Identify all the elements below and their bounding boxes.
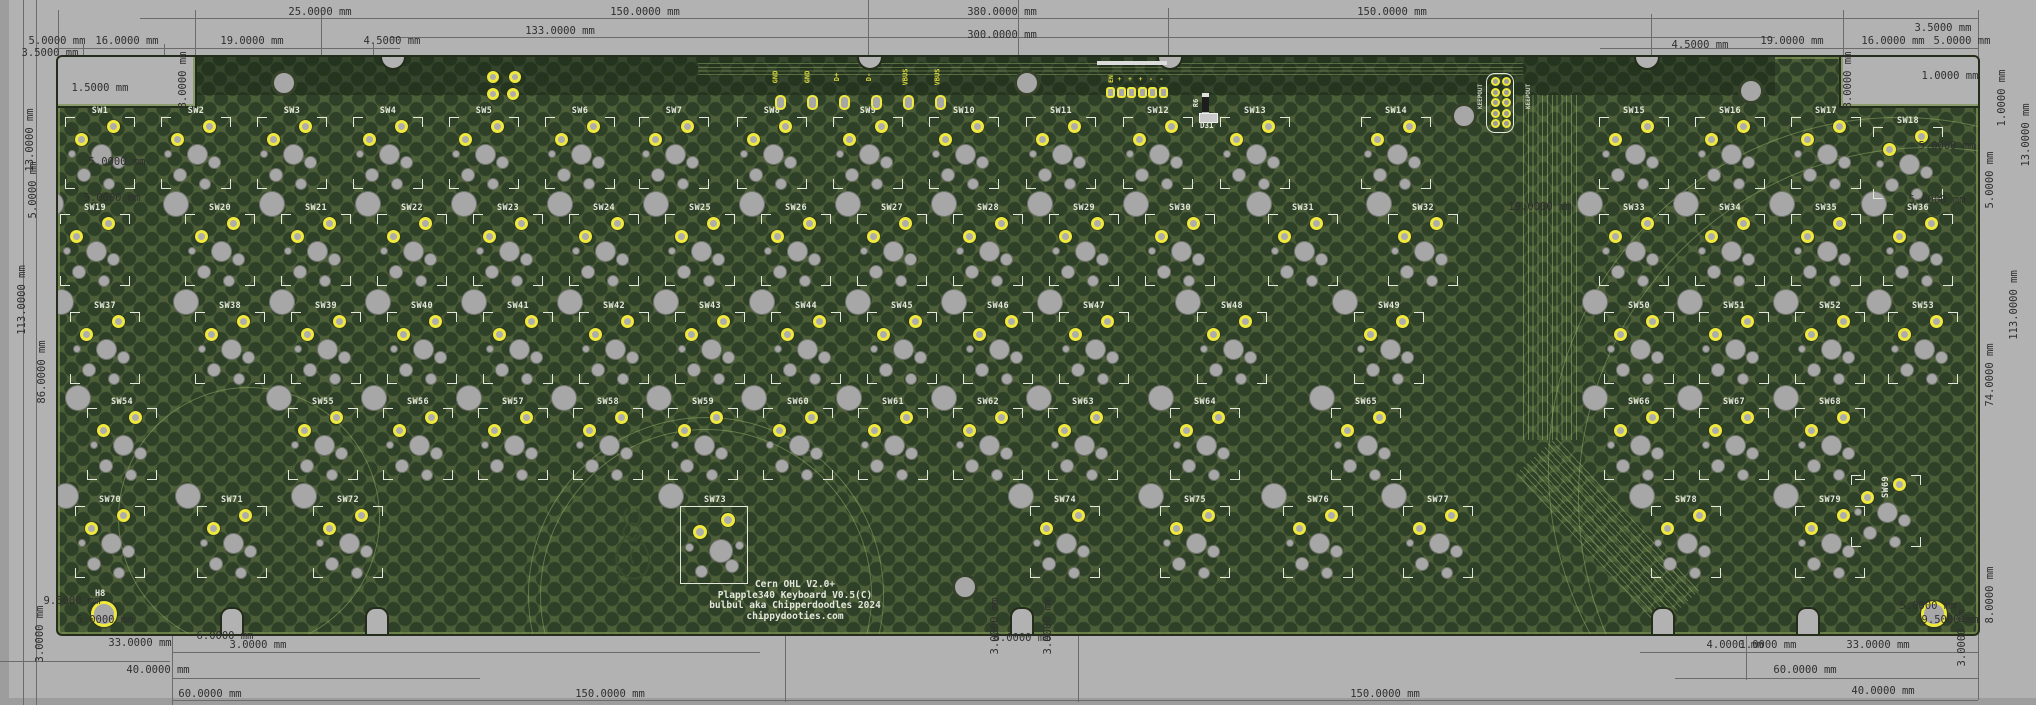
- courtyard-corner: [699, 179, 709, 189]
- switch-stem-hole: [1074, 435, 1095, 456]
- courtyard-corner: [533, 276, 543, 286]
- switch-side-hole: [572, 247, 580, 255]
- courtyard-corner: [1755, 117, 1765, 127]
- switch-pin-pad: [939, 133, 952, 146]
- switch-side-hole: [1258, 178, 1270, 190]
- switch-pin-pad: [299, 120, 312, 133]
- switch-side-hole: [642, 150, 650, 158]
- switch-footprint-sw36: SW36: [1883, 203, 1953, 289]
- switch-footprint-sw58: SW58: [573, 397, 643, 483]
- courtyard-corner: [533, 214, 543, 224]
- switch-pin-pad: [875, 120, 888, 133]
- courtyard-corner: [291, 312, 301, 322]
- switch-courtyard: [763, 408, 833, 480]
- courtyard-corner: [1448, 214, 1458, 224]
- switch-side-hole: [1895, 265, 1909, 279]
- switch-courtyard: [953, 214, 1023, 286]
- switch-courtyard: [185, 214, 255, 286]
- switch-label: SW59: [692, 397, 714, 407]
- switch-courtyard: [383, 408, 453, 480]
- power-pad-2: [1127, 87, 1136, 98]
- switch-footprint-sw28: SW28: [953, 203, 1023, 289]
- courtyard-corner: [633, 470, 643, 480]
- switch-pin-pad: [1609, 133, 1622, 146]
- switch-stem-hole: [1909, 241, 1930, 262]
- switch-side-hole: [1223, 150, 1231, 158]
- courtyard-corner: [1257, 374, 1267, 384]
- switch-footprint-sw50: SW50: [1604, 301, 1674, 387]
- switch-label: SW12: [1147, 106, 1169, 116]
- switch-footprint-sw64: SW64: [1170, 397, 1240, 483]
- switch-footprint-sw66: SW66: [1604, 397, 1674, 483]
- courtyard-corner: [185, 214, 195, 224]
- switch-stem-hole: [1899, 154, 1920, 175]
- dimension-label: 4.5000 mm: [364, 35, 421, 47]
- switch-side-hole: [712, 253, 725, 266]
- courtyard-corner: [857, 214, 867, 224]
- switch-footprint-sw40: SW40: [387, 301, 457, 387]
- switch-pin-pad: [621, 315, 634, 328]
- dimension-label: 8.0000 mm: [177, 52, 189, 109]
- dimension-line: [1078, 634, 1079, 702]
- courtyard-corner: [953, 214, 963, 224]
- switch-courtyard: [1699, 408, 1769, 480]
- switch-pin-pad: [330, 411, 343, 424]
- courtyard-corner: [437, 214, 447, 224]
- switch-pin-pad: [1925, 217, 1938, 230]
- courtyard-corner: [245, 214, 255, 224]
- switch-pin-pad: [1202, 509, 1215, 522]
- switch-side-hole: [1733, 275, 1745, 287]
- switch-footprint-sw48: SW48: [1197, 301, 1267, 387]
- switch-side-hole: [1295, 557, 1309, 571]
- switch-side-hole: [1173, 441, 1181, 449]
- switch-pin-pad: [707, 217, 720, 230]
- courtyard-corner: [1791, 117, 1801, 127]
- courtyard-corner: [1873, 127, 1883, 137]
- courtyard-corner: [545, 117, 555, 127]
- switch-side-hole: [870, 459, 884, 473]
- mounting-hole: [952, 574, 978, 600]
- switch-pin-pad: [1737, 120, 1750, 133]
- switch-pin-pad: [237, 315, 250, 328]
- courtyard-corner: [823, 470, 833, 480]
- switch-pin-pad: [1413, 522, 1426, 535]
- dimension-line: [1651, 14, 1652, 57]
- switch-side-hole: [1406, 539, 1414, 547]
- switch-pin-pad: [1709, 424, 1722, 437]
- courtyard-corner: [629, 276, 639, 286]
- usb-pad-gnd0: [775, 95, 786, 110]
- dimension-label: 1.0000 mm: [1996, 70, 2008, 127]
- courtyard-corner: [1911, 537, 1921, 547]
- courtyard-corner: [1948, 312, 1958, 322]
- switch-stem-hole: [763, 144, 784, 165]
- header-pin-pad: [1491, 119, 1500, 128]
- switch-pin-pad: [70, 230, 83, 243]
- courtyard-corner: [538, 408, 548, 418]
- courtyard-corner: [633, 408, 643, 418]
- switch-side-hole: [1366, 363, 1380, 377]
- courtyard-corner: [1948, 374, 1958, 384]
- switch-courtyard: [1791, 117, 1861, 189]
- switch-side-hole: [1060, 459, 1074, 473]
- switch-courtyard: [75, 506, 145, 578]
- dimension-line: [23, 0, 24, 705]
- switch-side-hole: [1321, 567, 1333, 579]
- switch-side-hole: [1378, 447, 1391, 460]
- switch-side-hole: [481, 441, 489, 449]
- switch-side-hole: [295, 178, 307, 190]
- switch-label: SW17: [1815, 106, 1837, 116]
- courtyard-corner: [1851, 276, 1861, 286]
- header-pin-pad: [1491, 109, 1500, 118]
- switch-footprint-sw25: SW25: [665, 203, 735, 289]
- courtyard-corner: [1855, 374, 1865, 384]
- dimension-line: [1600, 48, 1978, 49]
- courtyard-corner: [1257, 312, 1267, 322]
- switch-label: SW23: [497, 203, 519, 213]
- pcb-drawing-canvas: Cern OHL V2.0+ Plapple340 Keyboard V0.5(…: [0, 0, 2036, 705]
- dimension-label: 13.0000 mm: [2020, 103, 2032, 166]
- switch-label: SW57: [502, 397, 524, 407]
- courtyard-corner: [1664, 470, 1674, 480]
- switch-stem-hole: [403, 241, 424, 262]
- courtyard-corner: [1659, 117, 1669, 127]
- switch-pin-pad: [1805, 328, 1818, 341]
- switch-side-hole: [232, 253, 245, 266]
- courtyard-corner: [1220, 179, 1230, 189]
- switch-pin-pad: [1212, 411, 1225, 424]
- switch-side-hole: [294, 345, 302, 353]
- switch-side-hole: [1400, 265, 1414, 279]
- switch-stem-hole: [1725, 435, 1746, 456]
- dimension-label: 3.0000 mm: [1042, 598, 1054, 655]
- switch-pin-pad: [488, 424, 501, 437]
- switch-side-hole: [1646, 156, 1659, 169]
- courtyard-corner: [1851, 537, 1861, 547]
- switch-stem-hole: [1052, 144, 1073, 165]
- courtyard-corner: [675, 312, 685, 322]
- switch-pin-pad: [771, 230, 784, 243]
- courtyard-corner: [1119, 374, 1129, 384]
- switch-footprint-sw2: SW2: [161, 106, 231, 192]
- switch-side-hole: [671, 441, 679, 449]
- courtyard-corner: [120, 214, 130, 224]
- courtyard-corner: [545, 179, 555, 189]
- switch-side-hole: [188, 247, 196, 255]
- switch-side-hole: [1885, 178, 1899, 192]
- switch-footprint-sw56: SW56: [383, 397, 453, 483]
- switch-side-hole: [991, 275, 1003, 287]
- courtyard-corner: [449, 179, 459, 189]
- courtyard-corner: [639, 117, 649, 127]
- power-pad-5: [1159, 87, 1168, 98]
- switch-side-hole: [904, 253, 917, 266]
- courtyard-corner: [1328, 214, 1338, 224]
- switch-side-hole: [1217, 447, 1230, 460]
- switch-side-hole: [199, 178, 211, 190]
- switch-side-hole: [1833, 567, 1845, 579]
- switch-pin-pad: [333, 315, 346, 328]
- courtyard-corner: [867, 374, 877, 384]
- switch-courtyard: [1888, 312, 1958, 384]
- switch-pin-pad: [1230, 133, 1243, 146]
- switch-stem-hole: [1414, 241, 1435, 262]
- courtyard-corner: [1048, 470, 1058, 480]
- switch-side-hole: [430, 447, 443, 460]
- courtyard-corner: [1403, 506, 1413, 516]
- switch-stem-hole: [1380, 339, 1401, 360]
- courtyard-corner: [1651, 506, 1661, 516]
- courtyard-corner: [317, 117, 327, 127]
- courtyard-corner: [893, 179, 903, 189]
- switch-side-hole: [1746, 351, 1759, 364]
- switch-side-hole: [680, 459, 694, 473]
- courtyard-corner: [185, 276, 195, 286]
- switch-side-hole: [678, 345, 686, 353]
- courtyard-corner: [281, 214, 291, 224]
- courtyard-corner: [1086, 179, 1096, 189]
- courtyard-corner: [383, 470, 393, 480]
- switch-side-hole: [1232, 168, 1246, 182]
- switch-footprint-sw7: SW7: [639, 106, 709, 192]
- courtyard-corner: [1795, 408, 1805, 418]
- switch-side-hole: [242, 351, 255, 364]
- switch-stem-hole: [1630, 339, 1651, 360]
- switch-pin-pad: [1091, 217, 1104, 230]
- switch-side-hole: [1064, 178, 1076, 190]
- courtyard-corner: [1851, 179, 1861, 189]
- switch-footprint-sw16: SW16: [1695, 106, 1765, 192]
- courtyard-corner: [1361, 179, 1371, 189]
- switch-pin-pad: [803, 217, 816, 230]
- switch-side-hole: [1794, 247, 1802, 255]
- courtyard-corner: [221, 179, 231, 189]
- courtyard-corner: [1123, 117, 1133, 127]
- switch-pin-pad: [843, 133, 856, 146]
- courtyard-corner: [569, 214, 579, 224]
- courtyard-corner: [1013, 470, 1023, 480]
- switch-stem-hole: [317, 339, 338, 360]
- switch-pin-pad: [995, 411, 1008, 424]
- courtyard-corner: [1795, 568, 1805, 578]
- dimension-label: 3.5000 mm: [22, 47, 79, 59]
- courtyard-corner: [413, 179, 423, 189]
- switch-footprint-sw71: SW71: [197, 495, 267, 581]
- switch-side-hole: [1450, 545, 1463, 558]
- switch-stem-hole: [101, 533, 122, 554]
- switch-footprint-sw72: SW72: [313, 495, 383, 581]
- switch-label: SW16: [1719, 106, 1741, 116]
- dimension-line: [785, 634, 786, 702]
- courtyard-corner: [383, 408, 393, 418]
- courtyard-corner: [963, 374, 973, 384]
- switch-side-hole: [1921, 275, 1933, 287]
- switch-courtyard: [65, 117, 135, 189]
- courtyard-corner: [443, 470, 453, 480]
- switch-footprint-sw26: SW26: [761, 203, 831, 289]
- switch-courtyard: [1873, 127, 1943, 199]
- switch-pin-pad: [107, 120, 120, 133]
- dimension-line: [1640, 652, 1978, 653]
- courtyard-corner: [1759, 408, 1769, 418]
- switch-courtyard: [1160, 506, 1230, 578]
- switch-side-hole: [200, 539, 208, 547]
- courtyard-corner: [341, 276, 351, 286]
- switch-pin-pad: [85, 522, 98, 535]
- switch-pin-pad: [483, 230, 496, 243]
- courtyard-corner: [573, 408, 583, 418]
- courtyard-corner: [351, 312, 361, 322]
- switch-side-hole: [1426, 275, 1438, 287]
- courtyard-corner: [447, 374, 457, 384]
- switch-courtyard: [387, 312, 457, 384]
- switch-pin-pad: [1837, 509, 1850, 522]
- switch-courtyard: [833, 117, 903, 189]
- switch-side-hole: [1642, 373, 1654, 385]
- switch-side-hole: [380, 247, 388, 255]
- switch-label: SW74: [1054, 495, 1076, 505]
- switch-side-hole: [1654, 539, 1662, 547]
- switch-footprint-sw35: SW35: [1791, 203, 1861, 289]
- switch-label: SW32: [1412, 203, 1434, 213]
- switch-side-hole: [1192, 253, 1205, 266]
- switch-label: SW14: [1385, 106, 1407, 116]
- switch-side-hole: [1711, 363, 1725, 377]
- author-line: bulbul aka Chipperdoodles 2024: [709, 601, 881, 612]
- courtyard-corner: [858, 470, 868, 480]
- switch-side-hole: [1854, 508, 1862, 516]
- aux-pad: [509, 71, 521, 83]
- power-pad-label: +: [1128, 75, 1132, 83]
- switch-side-hole: [685, 543, 694, 552]
- switch-side-hole: [616, 253, 629, 266]
- switch-side-hole: [686, 156, 699, 169]
- switch-pin-pad: [1207, 328, 1220, 341]
- switch-side-hole: [1602, 150, 1610, 158]
- courtyard-corner: [665, 214, 675, 224]
- courtyard-corner: [699, 117, 709, 127]
- switch-side-hole: [103, 178, 115, 190]
- dimension-label: 60.0000 mm: [178, 688, 241, 700]
- courtyard-corner: [1119, 312, 1129, 322]
- switch-footprint-sw27: SW27: [857, 203, 927, 289]
- courtyard-corner: [1145, 214, 1155, 224]
- switch-footprint-sw22: SW22: [377, 203, 447, 289]
- courtyard-corner: [1283, 506, 1293, 516]
- r6-label: R6: [1192, 99, 1200, 107]
- courtyard-corner: [147, 470, 157, 480]
- mounting-hole: [1738, 78, 1764, 104]
- courtyard-corner: [1699, 470, 1709, 480]
- courtyard-corner: [629, 214, 639, 224]
- courtyard-corner: [437, 276, 447, 286]
- switch-courtyard: [1170, 408, 1240, 480]
- courtyard-corner: [1090, 568, 1100, 578]
- switch-side-hole: [991, 469, 1003, 481]
- switch-pin-pad: [1614, 328, 1627, 341]
- switch-courtyard: [737, 117, 807, 189]
- courtyard-corner: [728, 470, 738, 480]
- switch-side-hole: [1369, 469, 1381, 481]
- switch-pin-pad: [1898, 328, 1911, 341]
- switch-courtyard: [353, 117, 423, 189]
- switch-side-hole: [525, 447, 538, 460]
- switch-side-hole: [1038, 168, 1052, 182]
- switch-side-hole: [1637, 275, 1649, 287]
- switch-label: SW78: [1675, 495, 1697, 505]
- switch-side-hole: [1073, 156, 1086, 169]
- switch-side-hole: [905, 447, 918, 460]
- switch-footprint-sw30: SW30: [1145, 203, 1215, 289]
- courtyard-corner: [70, 374, 80, 384]
- courtyard-corner: [509, 179, 519, 189]
- courtyard-corner: [509, 117, 519, 127]
- courtyard-corner: [221, 117, 231, 127]
- switch-pin-pad: [973, 328, 986, 341]
- switch-side-hole: [521, 373, 533, 385]
- switch-side-hole: [325, 557, 339, 571]
- switch-side-hole: [591, 363, 605, 377]
- switch-label: SW35: [1815, 203, 1837, 213]
- switch-pin-pad: [1040, 522, 1053, 535]
- header-pin-pad: [1491, 98, 1500, 107]
- switch-side-hole: [1087, 275, 1099, 287]
- board-notch-bottom: [1796, 607, 1820, 634]
- switch-side-hole: [1441, 567, 1453, 579]
- switch-side-hole: [1829, 275, 1841, 287]
- switch-side-hole: [82, 363, 96, 377]
- courtyard-corner: [797, 117, 807, 127]
- switch-pin-pad: [1709, 328, 1722, 341]
- usb-pad-label: D-: [865, 73, 873, 81]
- switch-side-hole: [1286, 539, 1294, 547]
- switch-courtyard: [929, 117, 999, 189]
- courtyard-corner: [1108, 408, 1118, 418]
- switch-pin-pad: [117, 509, 130, 522]
- switch-footprint-sw74: SW74: [1030, 495, 1100, 581]
- switch-courtyard: [569, 214, 639, 286]
- dimension-label: 25.0000 mm: [288, 6, 351, 18]
- switch-side-hole: [496, 156, 509, 169]
- switch-side-hole: [1077, 545, 1090, 558]
- dimension-line: [321, 14, 322, 57]
- courtyard-corner: [1755, 179, 1765, 189]
- courtyard-corner: [1664, 408, 1674, 418]
- switch-pin-pad: [587, 120, 600, 133]
- courtyard-corner: [483, 312, 493, 322]
- switch-side-hole: [860, 247, 868, 255]
- courtyard-corner: [1109, 276, 1119, 286]
- switch-pin-pad: [323, 217, 336, 230]
- courtyard-corner: [1599, 117, 1609, 127]
- switch-side-hole: [415, 275, 427, 287]
- switch-courtyard: [761, 214, 831, 286]
- switch-courtyard: [857, 214, 927, 286]
- switch-pin-pad: [1059, 230, 1072, 243]
- courtyard-corner: [1343, 506, 1353, 516]
- courtyard-corner: [1791, 276, 1801, 286]
- courtyard-corner: [917, 214, 927, 224]
- switch-label: SW76: [1307, 495, 1329, 505]
- switch-courtyard: [1651, 506, 1721, 578]
- switch-side-hole: [1068, 567, 1080, 579]
- website-line: chippydooties.com: [709, 612, 881, 623]
- switch-stem-hole: [409, 435, 430, 456]
- switch-footprint-sw11: SW11: [1026, 106, 1096, 192]
- switch-pin-pad: [75, 133, 88, 146]
